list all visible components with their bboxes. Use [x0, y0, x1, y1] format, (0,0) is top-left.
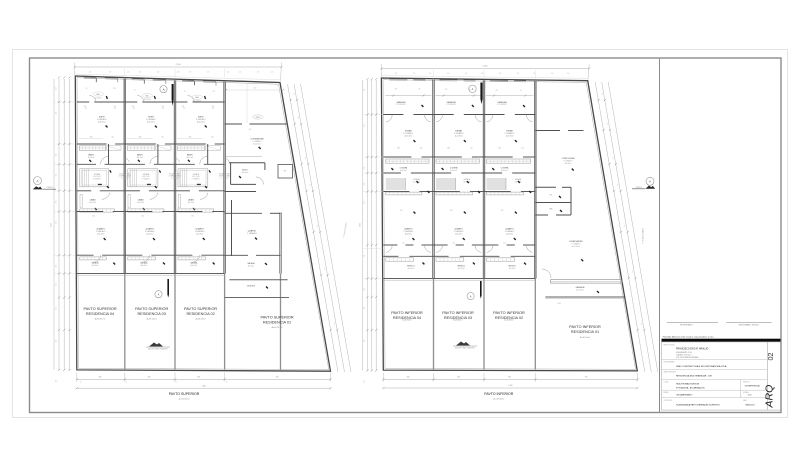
svg-text:120: 120: [551, 73, 554, 75]
svg-text:A: A: [37, 179, 39, 183]
svg-text:RESIDENCIA 03: RESIDENCIA 03: [138, 312, 166, 316]
svg-text:315: 315: [364, 201, 366, 204]
svg-text:A=38,50 m2: A=38,50 m2: [95, 318, 107, 321]
svg-text:95: 95: [419, 89, 421, 91]
svg-text:120: 120: [162, 108, 165, 110]
svg-text:02: 02: [766, 353, 775, 361]
svg-text:120: 120: [127, 72, 130, 74]
svg-text:J01: J01: [114, 106, 117, 108]
svg-text:2.895: 2.895: [557, 303, 561, 305]
svg-text:SACADA: SACADA: [92, 262, 100, 265]
svg-text:GARAGEM: GARAGEM: [396, 101, 406, 104]
svg-text:120: 120: [429, 73, 432, 75]
svg-text:330: 330: [508, 377, 511, 379]
svg-text:J01: J01: [84, 106, 87, 108]
svg-text:95: 95: [134, 90, 136, 92]
svg-text:250: 250: [395, 89, 398, 91]
svg-text:COZINHA: COZINHA: [450, 167, 458, 170]
svg-text:FRANCISCO EIVS R. ARAUJO: FRANCISCO EIVS R. ARAUJO: [676, 347, 708, 350]
svg-text:J01: J01: [132, 106, 135, 108]
svg-text:600: 600: [254, 87, 257, 89]
svg-text:A=48,25 m2: A=48,25 m2: [272, 326, 284, 329]
svg-text:COPA/COZINHA: COPA/COZINHA: [562, 157, 576, 160]
svg-text:315: 315: [364, 307, 366, 310]
svg-text:ESTAR/JANTAR: ESTAR/JANTAR: [569, 240, 583, 243]
svg-text:A=46,20m2: A=46,20m2: [580, 336, 591, 339]
svg-text:120: 120: [499, 73, 502, 75]
svg-text:QUARTO: QUARTO: [404, 228, 413, 231]
svg-text:120: 120: [114, 108, 117, 110]
svg-text:16x17,5x28: 16x17,5x28: [142, 176, 150, 178]
svg-text:J01: J01: [212, 106, 215, 108]
svg-text:150: 150: [249, 129, 252, 131]
svg-text:150: 150: [452, 243, 455, 245]
svg-text:CREA/SC 099.455-2: CREA/SC 099.455-2: [676, 353, 692, 356]
svg-text:120: 120: [133, 108, 136, 110]
svg-text:DEP.: DEP.: [549, 209, 553, 211]
svg-text:115: 115: [470, 148, 473, 150]
svg-text:PAVTO SUPERIOR: PAVTO SUPERIOR: [135, 307, 168, 311]
svg-text:A=36,80m2: A=36,80m2: [504, 319, 513, 322]
svg-text:QUARTO: QUARTO: [97, 228, 106, 231]
svg-text:315: 315: [364, 255, 366, 258]
svg-text:A=153,80m2: A=153,80m2: [493, 398, 504, 401]
svg-text:95: 95: [184, 91, 186, 93]
svg-text:16x17,5x28: 16x17,5x28: [93, 176, 101, 178]
svg-text:95: 95: [520, 90, 522, 92]
svg-text:250: 250: [445, 89, 448, 91]
svg-text:280: 280: [189, 137, 192, 139]
svg-text:ESTAR: ESTAR: [456, 130, 463, 133]
svg-text:*Havendo diferenca entre escal: *Havendo diferenca entre escala e cota, …: [663, 335, 715, 338]
svg-text:P. CONCRETO: P. CONCRETO: [446, 104, 457, 106]
svg-text:PAVTO INFERIOR: PAVTO INFERIOR: [569, 325, 601, 329]
svg-text:215: 215: [212, 91, 215, 93]
svg-text:SUITE: SUITE: [99, 117, 106, 119]
svg-text:GARAGEM: GARAGEM: [447, 101, 457, 104]
svg-text:1.360: 1.360: [201, 385, 205, 387]
svg-text:120: 120: [465, 73, 468, 75]
svg-text:315: 315: [364, 183, 366, 186]
svg-text:120: 120: [85, 108, 88, 110]
svg-text:SUITE: SUITE: [148, 117, 155, 119]
svg-text:315: 315: [364, 89, 366, 92]
svg-text:P. CONCRETO: P. CONCRETO: [396, 104, 407, 106]
svg-text:120: 120: [413, 73, 416, 75]
svg-text:315: 315: [56, 154, 58, 157]
svg-text:RESIDENCIA 04: RESIDENCIA 04: [86, 312, 114, 316]
svg-text:PAVTO SUPERIOR: PAVTO SUPERIOR: [169, 392, 200, 396]
svg-text:330: 330: [457, 377, 460, 379]
svg-text:120: 120: [157, 72, 160, 74]
svg-text:SME CONSTRUTORA E INCORPORADOR: SME CONSTRUTORA E INCORPORADORA LTDA: [676, 365, 727, 368]
svg-text:SUITE: SUITE: [198, 117, 205, 119]
svg-text:PAVTO INFERIOR: PAVTO INFERIOR: [484, 392, 513, 396]
svg-text:315: 315: [56, 87, 58, 90]
svg-text:315: 315: [364, 340, 366, 343]
svg-text:QUARTO: QUARTO: [505, 228, 514, 231]
svg-text:120: 120: [395, 73, 398, 75]
svg-text:280: 280: [397, 148, 400, 150]
svg-text:COZINHA/ESTAR: COZINHA/ESTAR: [250, 138, 264, 141]
svg-text:RESIDENCIA MULTIFAMILIAR - SM: RESIDENCIA MULTIFAMILIAR - SM: [676, 375, 712, 378]
svg-text:150: 150: [141, 215, 144, 217]
svg-text:P. CONCRETO: P. CONCRETO: [497, 104, 508, 106]
svg-text:A=153,80m2: A=153,80m2: [179, 398, 190, 401]
svg-text:120: 120: [207, 72, 210, 74]
svg-text:250: 250: [496, 90, 499, 92]
svg-text:115: 115: [161, 137, 164, 139]
svg-text:GEOREFERENCIAL: GEOREFERENCIAL: [745, 384, 761, 387]
svg-text:2.895: 2.895: [51, 223, 53, 227]
svg-text:280: 280: [139, 137, 142, 139]
svg-text:315: 315: [364, 288, 366, 291]
svg-text:FORTALEZA - BLUMENAU-SC: FORTALEZA - BLUMENAU-SC: [676, 387, 705, 390]
svg-text:15: 15: [80, 382, 82, 384]
svg-text:BANHO: BANHO: [137, 154, 144, 157]
svg-text:MAR/2023: MAR/2023: [746, 404, 755, 407]
svg-text:120: 120: [271, 72, 274, 74]
svg-text:COZINHA: COZINHA: [400, 167, 408, 170]
svg-text:QUARTO: QUARTO: [248, 230, 257, 233]
svg-text:RESIDENCIA 01: RESIDENCIA 01: [571, 330, 599, 334]
svg-text:16x17,5x28: 16x17,5x28: [192, 176, 200, 178]
svg-text:150: 150: [400, 210, 403, 212]
svg-text:120: 120: [183, 108, 186, 110]
svg-text:1.360: 1.360: [508, 385, 512, 387]
svg-text:315: 315: [56, 221, 58, 224]
svg-text:120: 120: [239, 72, 242, 74]
svg-text:ESTAR: ESTAR: [405, 130, 412, 133]
svg-text:150: 150: [503, 243, 506, 245]
svg-text:2.500: 2.500: [483, 66, 488, 68]
svg-text:315: 315: [56, 283, 58, 286]
svg-text:115: 115: [211, 137, 214, 139]
svg-text:ARQ: ARQ: [764, 385, 776, 409]
svg-text:ORCAMENTARIO: ORCAMENTARIO: [676, 394, 693, 397]
svg-text:120: 120: [447, 73, 450, 75]
svg-text:A=38,50m2: A=38,50m2: [147, 318, 158, 321]
svg-text:SACADA: SACADA: [140, 262, 148, 265]
svg-text:330: 330: [197, 377, 200, 379]
svg-text:QUARTO: QUARTO: [455, 228, 464, 231]
svg-text:A=36,80m2: A=36,80m2: [402, 319, 411, 322]
svg-text:BANHO: BANHO: [187, 154, 194, 157]
svg-text:(47) 99999-8888 BLUMENAU: (47) 99999-8888 BLUMENAU: [676, 356, 699, 359]
svg-text:2.500: 2.500: [176, 64, 181, 66]
svg-text:115: 115: [521, 148, 524, 150]
svg-text:95: 95: [86, 88, 88, 90]
svg-text:RESIDENCIA 02: RESIDENCIA 02: [186, 312, 214, 316]
svg-text:PAVTO SUPERIOR: PAVTO SUPERIOR: [184, 307, 217, 311]
svg-text:120: 120: [257, 72, 260, 74]
svg-text:280: 280: [90, 137, 93, 139]
svg-text:315: 315: [56, 340, 58, 343]
svg-text:315: 315: [364, 124, 366, 127]
svg-text:150: 150: [402, 243, 405, 245]
svg-text:120: 120: [89, 72, 92, 74]
svg-text:150: 150: [92, 215, 95, 217]
svg-text:150: 150: [450, 210, 453, 212]
svg-text:RUA THOMAS EDESON: RUA THOMAS EDESON: [676, 383, 700, 386]
svg-text:QUARTO: QUARTO: [146, 228, 155, 231]
svg-text:A=38,50m2: A=38,50m2: [195, 318, 206, 321]
svg-text:1:50: 1:50: [748, 395, 752, 397]
svg-text:315: 315: [364, 380, 366, 383]
svg-text:120: 120: [177, 72, 180, 74]
svg-text:PAVTO SUPERIOR: PAVTO SUPERIOR: [260, 316, 293, 320]
svg-text:745: 745: [585, 377, 588, 379]
svg-text:SACADA: SACADA: [190, 262, 198, 265]
svg-text:PROPRIETARIO: PROPRIETARIO: [680, 323, 693, 326]
svg-text:SERVICO: SERVICO: [508, 266, 516, 268]
svg-text:315: 315: [56, 112, 58, 115]
svg-text:215: 215: [113, 88, 116, 90]
svg-text:315: 315: [56, 307, 58, 310]
svg-text:A=36,80m2: A=36,80m2: [453, 319, 462, 322]
svg-text:J01: J01: [162, 106, 165, 108]
svg-text:330: 330: [99, 377, 102, 379]
svg-text:315: 315: [56, 200, 58, 203]
svg-text:120: 120: [139, 72, 142, 74]
svg-text:315: 315: [56, 380, 58, 383]
svg-text:RESIDENCIA 01: RESIDENCIA 01: [263, 320, 291, 324]
svg-text:PAVTO INFERIOR: PAVTO INFERIOR: [493, 311, 525, 315]
svg-text:RESP. TECNICO: RESP. TECNICO: [664, 345, 676, 347]
svg-text:330: 330: [407, 377, 410, 379]
svg-text:120: 120: [189, 72, 192, 74]
svg-text:115: 115: [420, 148, 423, 150]
svg-text:PAVTO INFERIOR: PAVTO INFERIOR: [391, 311, 423, 315]
svg-text:15: 15: [226, 382, 228, 384]
svg-text:120: 120: [533, 73, 536, 75]
svg-text:GARAGEM: GARAGEM: [497, 101, 507, 104]
svg-text:CONTEUDO: CONTEUDO: [664, 400, 673, 402]
svg-text:15: 15: [175, 382, 177, 384]
svg-text:PLANTA BAIXA PAVTO BERRADES SU: PLANTA BAIXA PAVTO BERRADES SUPERIOR: [676, 404, 720, 407]
svg-text:745: 745: [276, 377, 279, 379]
svg-text:15: 15: [125, 382, 127, 384]
svg-text:J01: J01: [182, 106, 185, 108]
svg-text:PROJETO: PROJETO: [743, 382, 750, 384]
svg-text:120: 120: [567, 73, 570, 75]
svg-text:120: 120: [212, 108, 215, 110]
svg-text:120: 120: [109, 72, 112, 74]
svg-text:PAVTO INFERIOR: PAVTO INFERIOR: [442, 311, 474, 315]
svg-text:120: 120: [517, 73, 520, 75]
svg-text:QUARTO: QUARTO: [196, 228, 205, 231]
svg-text:COZINHA: COZINHA: [501, 167, 509, 170]
svg-text:315: 315: [56, 265, 58, 268]
svg-text:PAVTO SUPERIOR: PAVTO SUPERIOR: [83, 307, 116, 311]
svg-text:280: 280: [498, 148, 501, 150]
svg-text:BANHO: BANHO: [88, 154, 95, 157]
svg-text:315: 315: [364, 167, 366, 170]
svg-text:280: 280: [447, 148, 450, 150]
svg-text:SERVICO: SERVICO: [458, 266, 466, 268]
svg-text:SACADA: SACADA: [248, 262, 256, 265]
svg-text:ESTAR: ESTAR: [506, 130, 513, 133]
svg-text:150: 150: [191, 215, 194, 217]
svg-text:RESPONSAVEL TECNICO: RESPONSAVEL TECNICO: [739, 323, 760, 326]
svg-text:120: 120: [481, 73, 484, 75]
svg-text:315: 315: [56, 174, 58, 177]
svg-text:150: 150: [501, 210, 504, 212]
svg-text:SERVICO: SERVICO: [407, 266, 415, 268]
svg-text:120: 120: [227, 72, 230, 74]
svg-text:GARAGEM: GARAGEM: [576, 286, 585, 289]
svg-text:A: A: [649, 180, 651, 184]
svg-text:330: 330: [148, 377, 151, 379]
svg-text:2.895: 2.895: [359, 223, 361, 227]
svg-text:115: 115: [112, 137, 115, 139]
